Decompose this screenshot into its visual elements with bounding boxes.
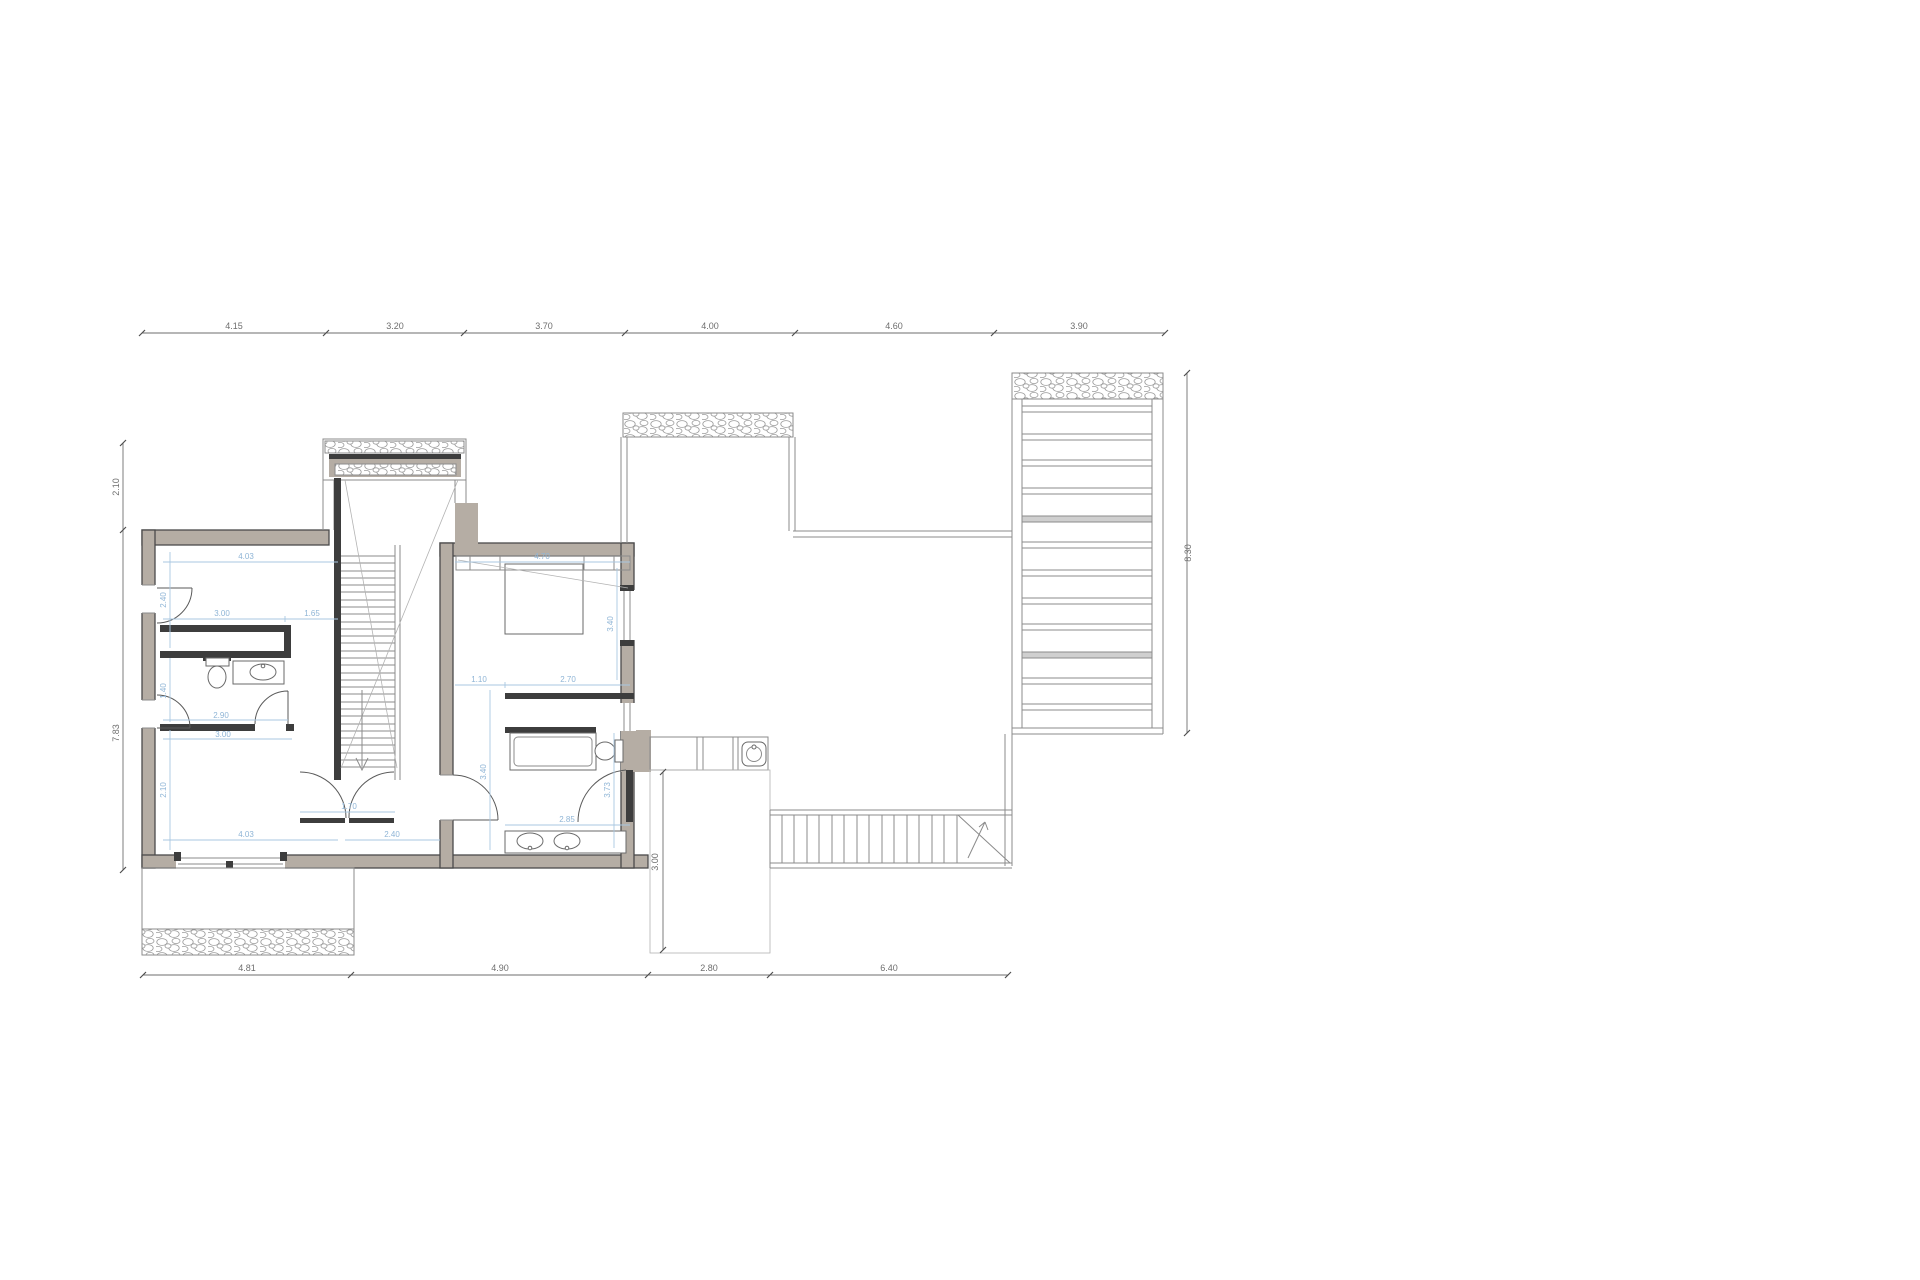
dim-label: 2.10 [111,478,121,496]
stair-treads [341,556,395,767]
stone-parapet [1012,373,1163,399]
dim-label: 2.85 [559,815,575,824]
toilet-tank [615,740,623,762]
dim-label: 4.81 [238,963,256,973]
dimension-chain-left: 2.10 7.83 [111,440,126,873]
balcony [142,868,354,955]
tap [261,664,265,668]
stairwell-head-structure [323,439,466,530]
dim-label: 3.90 [1070,321,1088,331]
bathtub [510,733,596,770]
double-door-arcs [300,772,394,818]
wall-top-left-block [142,530,329,545]
dim-label: 3.00 [215,730,231,739]
window [619,703,636,731]
dimension-chain-bottom: 4.81 4.90 2.80 6.40 [140,963,1011,978]
toilet-tank [206,658,229,666]
dim-label: 2.90 [213,711,229,720]
dim-label: 3.40 [479,764,488,780]
external-stair [770,810,1012,868]
floor-plan-drawing: 4.15 3.20 3.70 4.00 4.60 3.90 4.81 4.90 … [0,0,1920,1280]
dimension-chain-top: 4.15 3.20 3.70 4.00 4.60 3.90 [139,321,1168,336]
pergola [1012,373,1163,734]
dim-label: 4.00 [701,321,719,331]
dim-label: 4.03 [238,830,254,839]
dim-label: 4.70 [534,552,550,561]
dim-label: 2.40 [384,830,400,839]
door-arc [453,775,498,820]
dim-label: 1.10 [471,675,487,684]
dim-label: 7.83 [111,724,121,742]
dimension-chain-right: 8.30 [1183,370,1193,736]
dim-label: 3.00 [650,853,660,871]
stair-wall [334,478,341,780]
stone-parapet [623,413,793,437]
dim-label: 4.60 [885,321,903,331]
dim-label: 3.00 [214,609,230,618]
dim-label: 3.40 [606,616,615,632]
wall-connector [455,503,478,545]
window [619,590,636,640]
dim-label: 1.40 [159,683,168,699]
dim-label: 3.73 [603,782,612,798]
toilet-icon [595,742,615,760]
door-arc [578,770,626,822]
door-arc [255,691,288,724]
dim-label: 6.40 [880,963,898,973]
toilet-icon [208,666,226,688]
dim-label: 2.40 [159,592,168,608]
dim-label: 2.70 [560,675,576,684]
floor-plan-page: 4.15 3.20 3.70 4.00 4.60 3.90 4.81 4.90 … [0,0,1920,1280]
stair-treads [782,815,957,863]
dim-label: 2.80 [700,963,718,973]
dim-label: 4.15 [225,321,243,331]
dim-label: 3.20 [386,321,404,331]
dim-label: 8.30 [1183,544,1193,562]
dim-label: 3.70 [535,321,553,331]
lower-terrace [650,770,770,953]
wall-left [142,530,155,868]
stone-parapet [142,929,354,955]
dim-label: 4.90 [491,963,509,973]
tap [565,846,569,850]
dim-label: 1.65 [304,609,320,618]
dim-label: 2.10 [159,782,168,798]
fixtures [206,556,630,853]
dim-label: 4.03 [238,552,254,561]
door-arc [157,695,190,728]
tap [752,745,756,749]
stone-band [335,464,456,475]
stone-band [325,441,464,453]
dim-label: 1.70 [341,802,357,811]
wall-stub [621,730,651,772]
tap [528,846,532,850]
